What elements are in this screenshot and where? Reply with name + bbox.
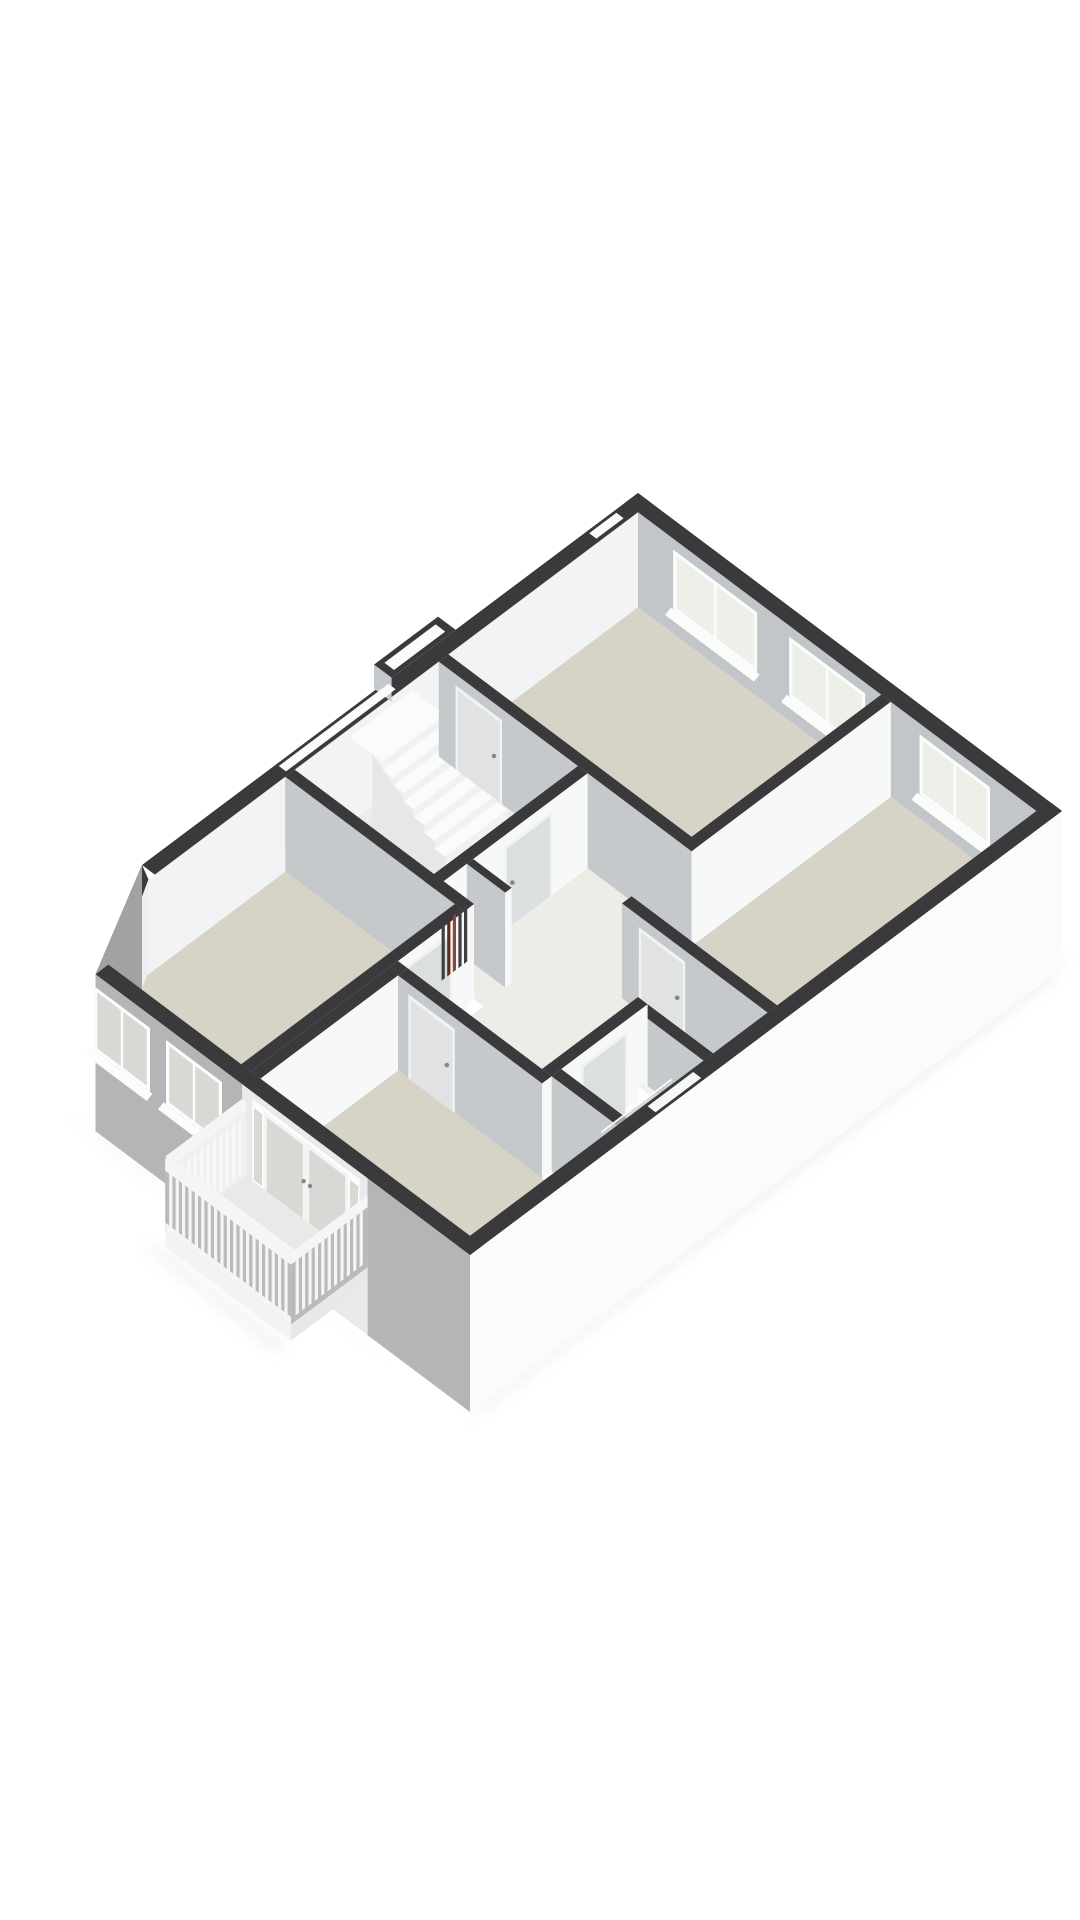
meter-closet-pipes <box>464 906 467 964</box>
door-handle <box>510 880 515 885</box>
balustrade-front-slat <box>188 1188 191 1244</box>
wall-room-bottom-north-face-se <box>542 1076 552 1178</box>
balustrade-right-slat <box>296 1259 299 1315</box>
floorplan-canvas <box>0 0 1080 1920</box>
door-handle <box>445 1063 450 1068</box>
window-bedroom-left-1-mullion <box>121 1010 123 1068</box>
window-bedroom-left-2-mullion <box>193 1064 195 1122</box>
meter-closet-pipes <box>453 914 456 972</box>
balustrade-front-slat <box>227 1217 230 1273</box>
balustrade-right-slat <box>360 1211 363 1267</box>
balustrade-front-slat <box>233 1222 236 1278</box>
balustrade-front-slat <box>220 1212 223 1268</box>
wall-closet-top-face-se <box>505 888 511 988</box>
balustrade-right-slat <box>353 1216 356 1272</box>
balustrade-left-slat <box>213 1139 215 1197</box>
french-doors-room-bottom-sidelight <box>254 1108 262 1186</box>
window-bedroom-top-2-mullion <box>826 668 828 722</box>
balustrade-left-slat <box>226 1129 228 1187</box>
wall-bedroom-top-south-face-se <box>692 844 702 946</box>
balustrade-right-slat <box>334 1230 337 1286</box>
floorplan-3d-render <box>0 0 1080 1920</box>
balustrade-front-slat <box>252 1236 255 1292</box>
balustrade-right-slat <box>328 1235 331 1291</box>
balustrade-right-slat <box>321 1240 324 1296</box>
balustrade-right-slat <box>315 1244 318 1300</box>
window-bedroom-right-mullion <box>954 764 956 818</box>
floorplan-svg <box>0 0 1080 1920</box>
balustrade-front-slat <box>246 1231 249 1287</box>
balustrade-front-slat <box>240 1226 243 1282</box>
balustrade-front-slat <box>195 1193 198 1249</box>
meter-closet-pipes <box>447 918 450 976</box>
balustrade-front-slat <box>182 1183 185 1239</box>
balustrade-left-slat <box>232 1124 234 1182</box>
french-doors-room-bottom-handle <box>301 1179 305 1183</box>
window-bedroom-top-1-mullion <box>714 584 716 638</box>
balustrade-front-slat <box>208 1202 211 1258</box>
balustrade-left-slat <box>220 1134 222 1192</box>
meter-closet-pipes <box>458 910 461 968</box>
door-handle <box>675 996 680 1001</box>
balustrade-front-slat <box>278 1255 281 1311</box>
balustrade-front-slat <box>214 1207 217 1263</box>
door-handle <box>492 754 497 759</box>
balustrade-left-slat <box>239 1120 241 1178</box>
balustrade-right-slat <box>347 1220 350 1276</box>
balustrade-right-slat <box>340 1225 343 1281</box>
balustrade-front-slat <box>265 1246 268 1302</box>
balustrade-front-slat <box>176 1178 179 1234</box>
balustrade-right-slat <box>308 1249 311 1305</box>
balustrade-front-slat <box>259 1241 262 1297</box>
balustrade-front-slat <box>284 1260 287 1316</box>
french-doors-room-bottom-handle <box>308 1184 312 1188</box>
balustrade-front-slat <box>201 1198 204 1254</box>
meter-closet-pipes <box>442 922 445 980</box>
balustrade-front-slat <box>169 1174 172 1230</box>
balustrade-front-slat <box>272 1250 275 1306</box>
balustrade-right-slat <box>302 1254 305 1310</box>
